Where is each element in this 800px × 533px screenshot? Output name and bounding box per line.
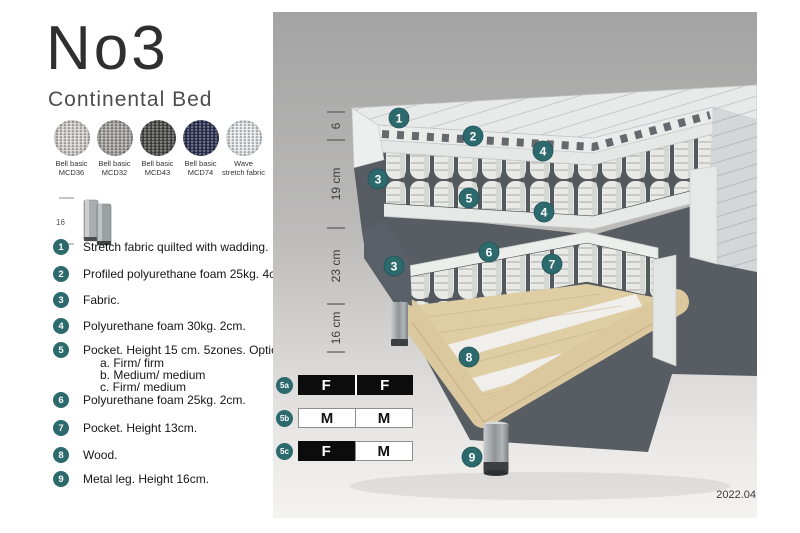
- firmness-cell: F: [357, 375, 414, 395]
- leg-height-label: 16: [56, 218, 65, 227]
- legend-item-3: 3 Fabric.: [53, 292, 120, 308]
- legend-item-1: 1 Stretch fabric quilted with wadding.: [53, 239, 268, 255]
- firmness-badge-5c: 5c: [276, 443, 293, 460]
- legend-item-9: 9 Metal leg. Height 16cm.: [53, 471, 209, 487]
- firmness-cell: F: [298, 375, 355, 395]
- legend-item-text: Polyurethane foam 25kg. 2cm.: [83, 393, 246, 407]
- legend-number-badge: 9: [53, 471, 69, 487]
- legend-item-text: Stretch fabric quilted with wadding.: [83, 240, 268, 254]
- firmness-row-5b: 5b M M: [276, 408, 413, 428]
- legend-number-badge: 6: [53, 392, 69, 408]
- legend-number-badge: 7: [53, 420, 69, 436]
- fabric-swatch: Bell basicMCD74: [179, 120, 222, 178]
- fabric-swatch: Bell basicMCD32: [93, 120, 136, 178]
- fabric-swatch-circle: [54, 120, 90, 156]
- fabric-swatch-label: Bell basicMCD36: [55, 159, 87, 178]
- fabric-swatch-row: Bell basicMCD36 Bell basicMCD32 Bell bas…: [50, 120, 265, 178]
- fabric-swatch-circle: [226, 120, 262, 156]
- legend-number-badge: 3: [53, 292, 69, 308]
- legend-item-text: Profiled polyurethane foam 25kg. 4cm.: [83, 267, 288, 281]
- legend-item-8: 8 Wood.: [53, 447, 117, 463]
- firmness-row-5c: 5c F M: [276, 441, 413, 461]
- legend-number-badge: 4: [53, 318, 69, 334]
- legend-item-text: Pocket. Height 15 cm. 5zones. Option:: [83, 343, 288, 357]
- page-subtitle: Continental Bed: [48, 88, 212, 112]
- fabric-swatch-circle: [183, 120, 219, 156]
- fabric-swatch-circle: [140, 120, 176, 156]
- firmness-cell: M: [298, 408, 356, 428]
- legend-number-badge: 2: [53, 266, 69, 282]
- fabric-swatch: Bell basicMCD36: [50, 120, 93, 178]
- firmness-badge-5b: 5b: [276, 410, 293, 427]
- fabric-swatch: Bell basicMCD43: [136, 120, 179, 178]
- firmness-row-5a: 5a F F: [276, 375, 413, 395]
- fabric-swatch-label: Bell basicMCD43: [141, 159, 173, 178]
- firmness-cells-5b: M M: [298, 408, 413, 428]
- firmness-cell: M: [355, 408, 413, 428]
- page-title: No3: [46, 18, 169, 80]
- fabric-swatch: Wavestretch fabric: [222, 120, 265, 178]
- legend-item-5: 5 Pocket. Height 15 cm. 5zones. Option:: [53, 342, 288, 358]
- version-stamp: 2022.04: [698, 489, 756, 501]
- firmness-cells-5c: F M: [298, 441, 413, 461]
- firmness-cell: F: [298, 441, 355, 461]
- firmness-badge-5a: 5a: [276, 377, 293, 394]
- legend-item-2: 2 Profiled polyurethane foam 25kg. 4cm.: [53, 266, 288, 282]
- legend-item-text: Metal leg. Height 16cm.: [83, 472, 209, 486]
- fabric-swatch-circle: [97, 120, 133, 156]
- legend-number-badge: 1: [53, 239, 69, 255]
- fabric-swatch-label: Bell basicMCD74: [184, 159, 216, 178]
- legend-number-badge: 8: [53, 447, 69, 463]
- firmness-cells-5a: F F: [298, 375, 413, 395]
- legend-number-badge: 5: [53, 342, 69, 358]
- legend-item-text: Fabric.: [83, 293, 120, 307]
- legend-item-text: Wood.: [83, 448, 117, 462]
- firmness-cell: M: [355, 441, 414, 461]
- fabric-swatch-label: Bell basicMCD32: [98, 159, 130, 178]
- fabric-swatch-label: Wavestretch fabric: [222, 159, 265, 178]
- legend-item-text: Polyurethane foam 30kg. 2cm.: [83, 319, 246, 333]
- legend-item-text: Pocket. Height 13cm.: [83, 421, 197, 435]
- legend-item-4: 4 Polyurethane foam 30kg. 2cm.: [53, 318, 246, 334]
- legend-item-6: 6 Polyurethane foam 25kg. 2cm.: [53, 392, 246, 408]
- legend-item-7: 7 Pocket. Height 13cm.: [53, 420, 197, 436]
